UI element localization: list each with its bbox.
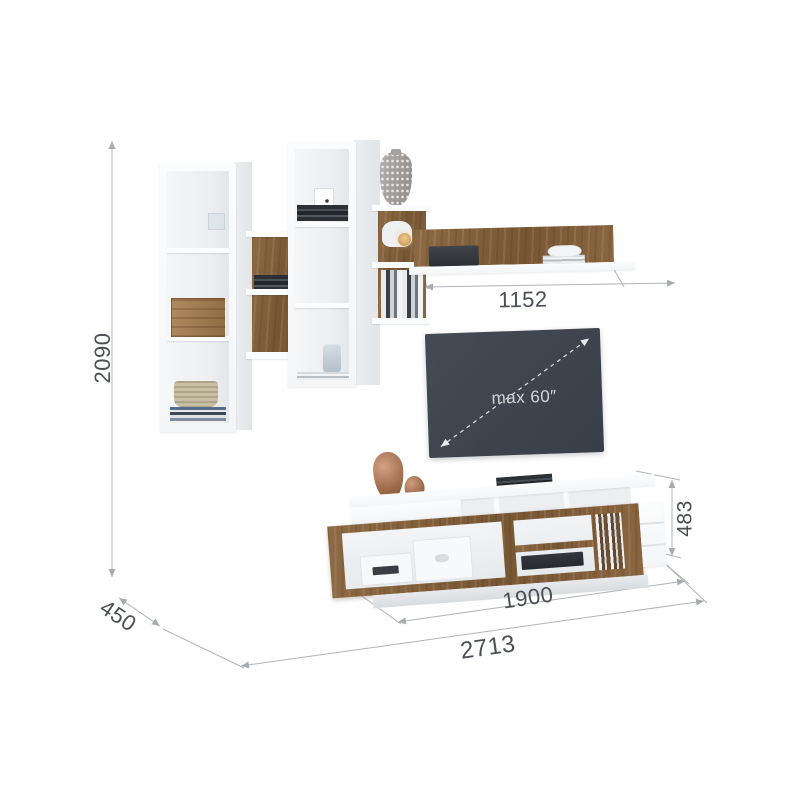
glass-box-decor <box>208 213 225 230</box>
dim-label-stand-height: 483 <box>675 484 696 554</box>
shelf-board <box>167 248 229 253</box>
green-bottle-decor <box>260 311 284 352</box>
bowl-stack-decor <box>548 245 582 258</box>
floating-wall-shelf <box>408 220 637 278</box>
left-wall-cabinet <box>160 162 252 432</box>
dim-label-depth: 450 <box>87 590 149 642</box>
stand-cd-slot <box>595 513 625 571</box>
tv-max-size-label: max 60″ <box>474 386 575 409</box>
dimension-lines <box>0 0 800 800</box>
shelf-board <box>295 303 349 308</box>
book-stack-decor <box>297 205 348 221</box>
shelf-board <box>295 222 349 227</box>
stand-right-white-section <box>638 501 667 567</box>
dim-line-wall-shelf-width <box>425 283 675 287</box>
dim-label-total-height: 2090 <box>92 323 114 393</box>
glass-vase-decor <box>322 344 342 374</box>
right-wall-cabinet <box>288 140 380 387</box>
tv-stand <box>321 418 669 618</box>
book-stack-decor <box>170 407 226 423</box>
shelf-board <box>372 318 430 324</box>
speaker-decor <box>429 245 479 266</box>
wicker-basket-decor <box>174 381 218 407</box>
vase-neck <box>391 149 401 155</box>
dim-label-wall-shelf-width: 1152 <box>483 288 563 311</box>
ext-line <box>163 629 244 668</box>
patterned-vase-decor <box>380 152 412 205</box>
furniture-product-diagram: max 60″ 2090 450 1152 1900 2713 483 <box>0 0 800 800</box>
wooden-crate-decor <box>171 298 225 337</box>
dim-label-total-width: 2713 <box>437 629 539 667</box>
book-stack-decor <box>297 372 349 380</box>
